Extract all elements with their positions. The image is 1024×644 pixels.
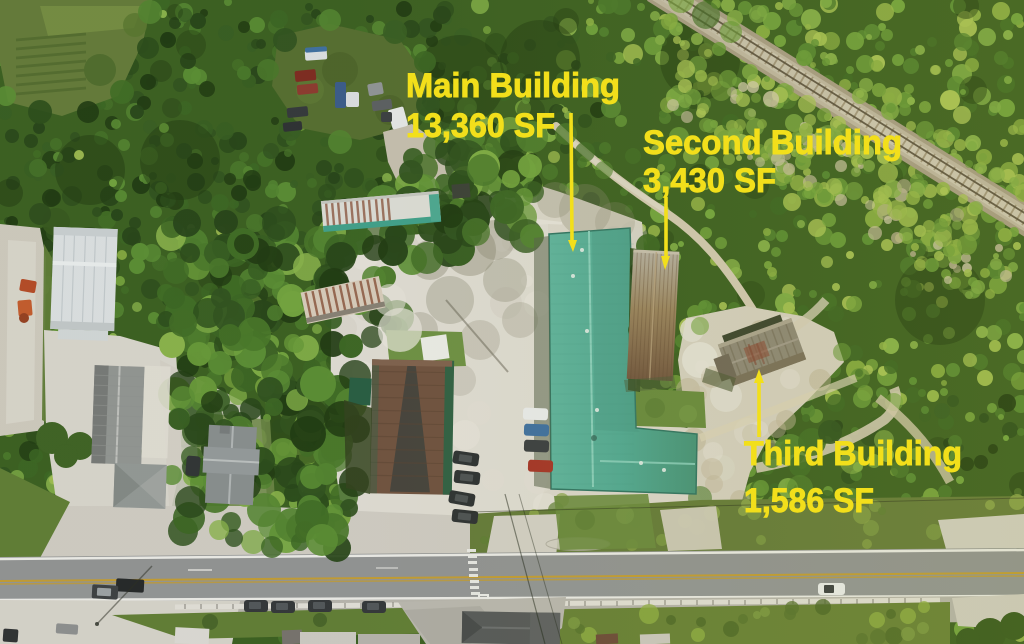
svg-text:13,360 SF: 13,360 SF [406,107,555,145]
svg-text:1,586 SF: 1,586 SF [744,482,874,520]
svg-text:Second Building: Second Building [643,124,902,162]
svg-text:Third Building: Third Building [744,435,962,473]
svg-text:Main Building: Main Building [406,67,620,105]
svg-text:3,430 SF: 3,430 SF [643,162,776,200]
